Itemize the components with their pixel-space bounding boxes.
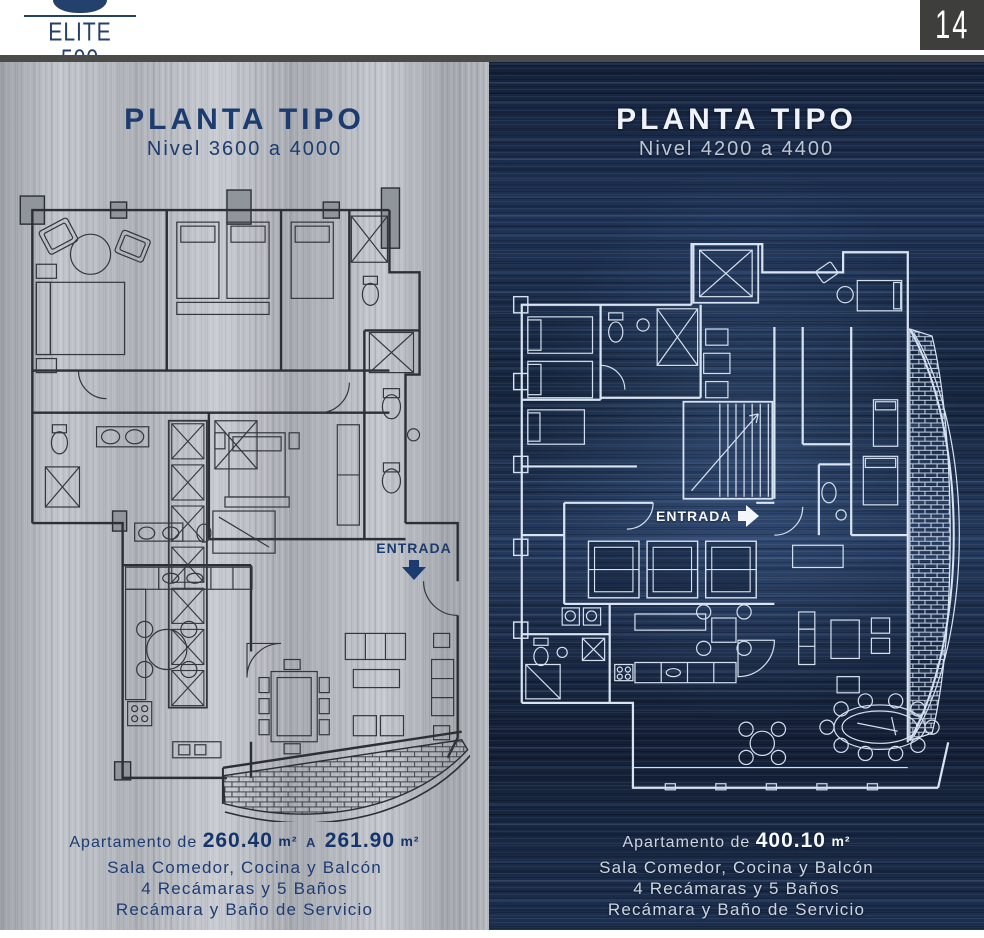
entrance-label: ENTRADA (376, 540, 451, 556)
page-number-badge: 14 (920, 0, 984, 50)
area-prefix: Apartamento de (622, 834, 750, 851)
feature-line: 4 Recámaras y 5 Baños (489, 878, 984, 899)
area-unit-2: m² (400, 833, 419, 849)
panel-subtitle: Nivel 3600 a 4000 (0, 138, 489, 161)
logo-wave-icon (53, 0, 107, 13)
area-connector: A (306, 835, 316, 850)
floor-plan-panels: PLANTA TIPO Nivel 3600 a 4000 (0, 62, 984, 930)
feature-line: Sala Comedor, Cocina y Balcón (0, 857, 489, 878)
entrance-callout: ENTRADA (656, 505, 759, 527)
area-value-2: 261.90 (325, 829, 395, 852)
area-value: 400.10 (756, 829, 826, 852)
panel-left-details: Apartamento de 260.40 m² A 261.90 m² Sal… (0, 829, 489, 920)
floor-plan-left (18, 180, 470, 822)
area-unit: m² (278, 833, 297, 849)
feature-line: Sala Comedor, Cocina y Balcón (489, 857, 984, 878)
top-bar: ELITE 500 DOS MARES 14 (0, 0, 984, 55)
panel-right-navy: PLANTA TIPO Nivel 4200 a 4400 (489, 62, 984, 930)
feature-line: 4 Recámaras y 5 Baños (0, 878, 489, 899)
page-number: 14 (935, 3, 969, 48)
panel-title: PLANTA TIPO (0, 105, 489, 135)
divider-band (0, 55, 984, 62)
entrance-arrow-right-icon (738, 505, 759, 527)
panel-right-details: Apartamento de 400.10 m² Sala Comedor, C… (489, 829, 984, 920)
entrance-arrow-down-icon (402, 560, 426, 580)
panel-subtitle: Nivel 4200 a 4400 (489, 138, 984, 161)
area-value: 260.40 (203, 829, 273, 852)
entrance-callout: ENTRADA (366, 540, 462, 580)
area-unit: m² (831, 833, 850, 849)
area-line: Apartamento de 260.40 m² A 261.90 m² (0, 829, 489, 853)
feature-line: Recámara y Baño de Servicio (489, 899, 984, 920)
panel-title: PLANTA TIPO (489, 105, 984, 135)
panel-left-silver: PLANTA TIPO Nivel 3600 a 4000 (0, 62, 489, 930)
feature-line: Recámara y Baño de Servicio (0, 899, 489, 920)
entrance-label: ENTRADA (656, 508, 731, 524)
area-prefix: Apartamento de (69, 834, 197, 851)
area-line: Apartamento de 400.10 m² (489, 829, 984, 853)
panel-right-header: PLANTA TIPO Nivel 4200 a 4400 (489, 105, 984, 161)
panel-left-header: PLANTA TIPO Nivel 3600 a 4000 (0, 105, 489, 161)
